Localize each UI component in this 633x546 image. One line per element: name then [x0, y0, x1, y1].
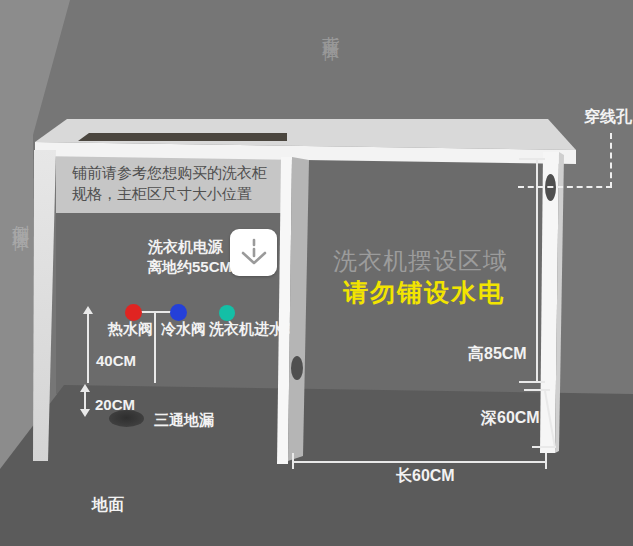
length-right-tick	[545, 453, 547, 469]
height-top-tick	[519, 158, 545, 160]
cold-water-valve-dot	[170, 304, 187, 321]
depth-line	[544, 391, 556, 446]
height-line	[536, 160, 538, 382]
valve-height-label: 40CM	[96, 352, 136, 369]
washer-area-title: 洗衣机摆设区域	[333, 245, 508, 277]
drain-offset-arrow-up-icon	[80, 384, 90, 392]
drain-offset-line	[84, 390, 86, 410]
hot-water-valve-dot	[125, 304, 142, 321]
cold-water-valve-label: 冷水阀	[161, 320, 206, 339]
depth-label: 深60CM	[481, 408, 540, 429]
length-label: 长60CM	[396, 466, 455, 487]
length-line	[293, 461, 546, 463]
washer-area-warning: 请勿铺设水电	[343, 276, 505, 309]
side-wall-label: 侧面墙体	[9, 212, 32, 224]
wire-hole-pointer-h	[518, 186, 612, 188]
notice-text: 铺前请参考您想购买的洗衣柜规格，主柜区尺寸大小位置	[72, 162, 276, 204]
wire-hole-pointer-v	[610, 133, 612, 188]
power-outlet	[230, 229, 277, 276]
washer-cabinet-installation-diagram: 背面墙体 侧面墙体 铺前请参考您想购买的洗衣柜规格，主柜区尺寸大小位置 热水阀 …	[0, 0, 633, 546]
height-label: 高85CM	[468, 344, 527, 365]
power-outlet-note: 洗衣机电源 离地约55CM	[147, 237, 223, 277]
power-outlet-note-line1: 洗衣机电源	[148, 238, 223, 255]
height-bottom-tick	[519, 381, 545, 383]
back-wall-label: 背面墙体	[319, 22, 342, 34]
drain-offset-arrow-down-icon	[80, 409, 90, 417]
wire-hole-label: 穿线孔	[584, 107, 632, 128]
inlet-valve-label: 洗衣机进水阀	[209, 320, 299, 339]
depth-bottom-tick	[532, 446, 556, 448]
valve-height-line	[87, 313, 89, 383]
divider-pipe-hole	[291, 356, 303, 380]
power-outlet-note-line2: 离地约55CM	[147, 258, 232, 275]
notice-panel: 铺前请参考您想购买的洗衣柜规格，主柜区尺寸大小位置	[56, 154, 285, 214]
floor-drain	[109, 410, 144, 427]
hot-water-valve-label: 热水阀	[108, 320, 153, 339]
valve-height-arrow-icon	[83, 306, 93, 314]
floor-drain-label: 三通地漏	[154, 411, 214, 430]
inlet-valve-dot	[219, 305, 235, 321]
ground-label: 地面	[92, 495, 124, 516]
pipe-drop-line	[154, 312, 156, 383]
plug-down-arrow-icon	[237, 236, 271, 270]
